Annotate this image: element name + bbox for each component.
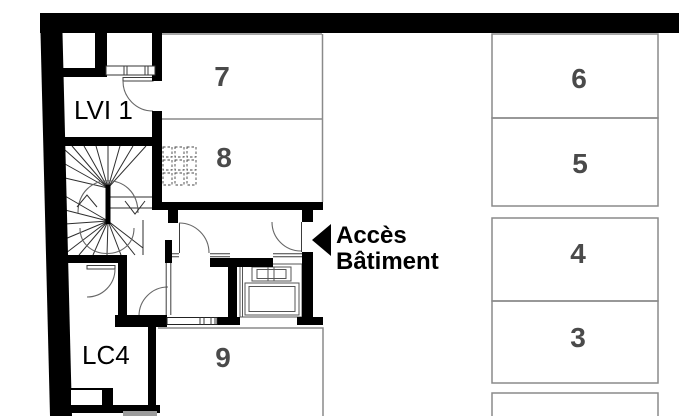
space-number-9: 9 xyxy=(215,342,231,373)
window-symbol xyxy=(70,389,103,405)
space-number-6: 6 xyxy=(571,63,587,94)
space-number-7: 7 xyxy=(214,61,230,92)
floor-plan-svg: LVI 1 LC4 Accès Bâtiment 7 8 9 6 5 4 3 xyxy=(0,0,679,416)
space-number-8: 8 xyxy=(216,142,232,173)
window-symbol xyxy=(167,318,217,325)
room-label-lc4: LC4 xyxy=(82,340,130,370)
corridor-top-wall xyxy=(153,202,323,210)
access-label-line1: Accès xyxy=(336,222,407,249)
space-number-5: 5 xyxy=(572,148,588,179)
room-label-lvi1: LVI 1 xyxy=(74,95,133,125)
stair-newel xyxy=(106,185,111,224)
space-number-4: 4 xyxy=(570,238,586,269)
access-label-line2: Bâtiment xyxy=(336,248,439,275)
ramp-gray-rect xyxy=(123,411,157,416)
space-number-3: 3 xyxy=(570,322,586,353)
top-wall xyxy=(40,13,679,33)
